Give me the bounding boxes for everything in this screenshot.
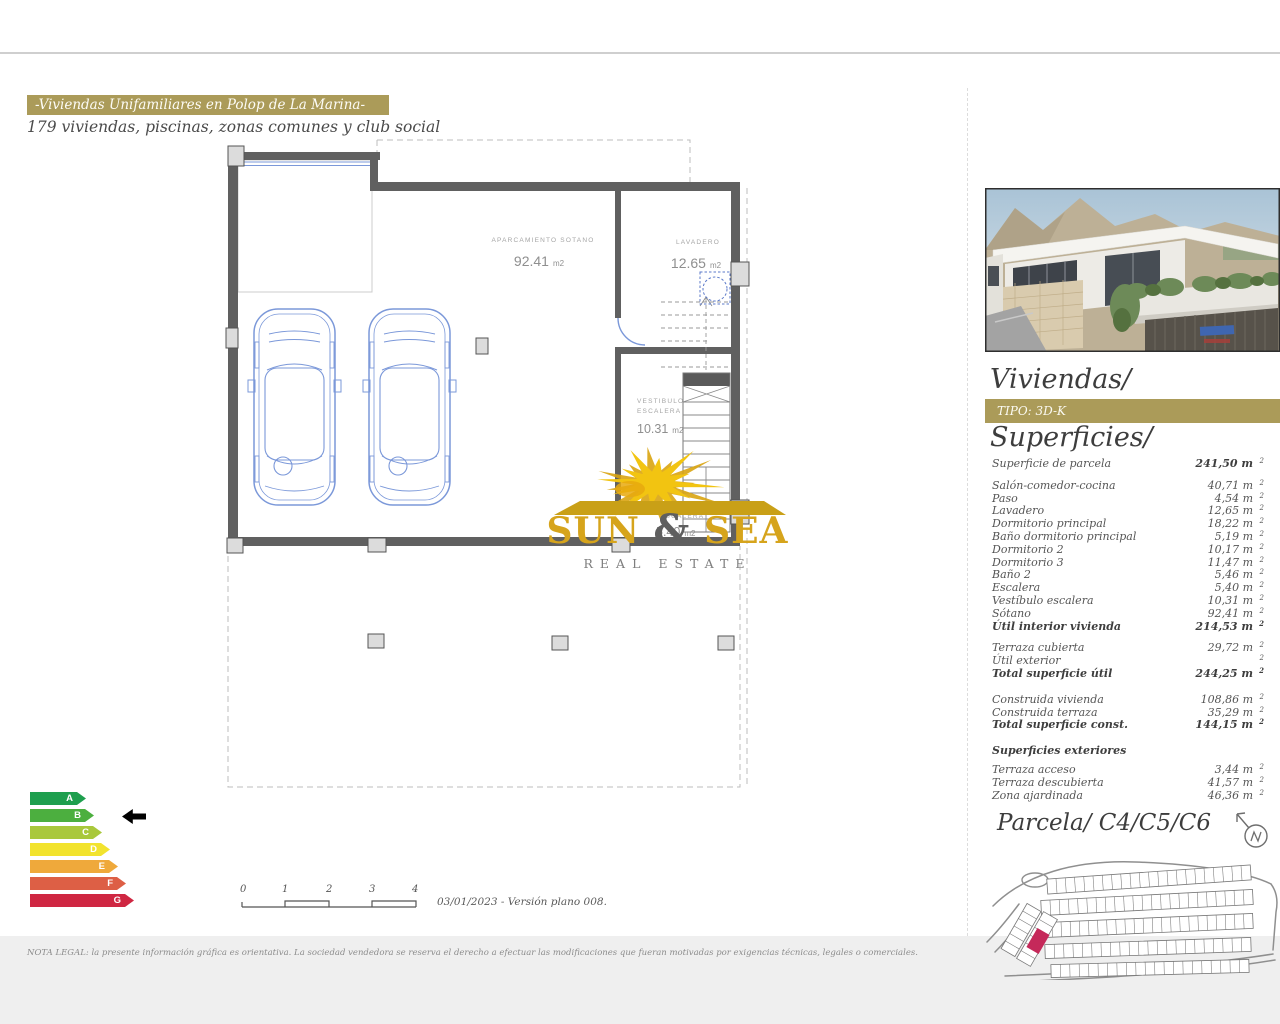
logo-ampersand: & (653, 506, 690, 553)
viviendas-title: Viviendas/ (990, 364, 1131, 395)
logo-word-sun: SUN (547, 510, 640, 552)
panel-divider (967, 88, 968, 936)
superficie-row: Útil interior vivienda214,53 m2 (992, 621, 1264, 634)
ground-floor-dashed-outline (377, 140, 690, 182)
energy-rating-chart: ABCDEFG (30, 792, 180, 911)
superficie-row: Construida vivienda108,86 m2 (992, 694, 1264, 707)
parking-room-label: APARCAMIENTO SOTANO (492, 237, 595, 244)
superficie-row: Superficie de parcela241,50 m2 (992, 458, 1264, 471)
laundry-room-label: LAVADERO (676, 239, 720, 246)
scale-tick: 4 (412, 884, 418, 895)
garage-door-line (242, 162, 370, 166)
parcel-strip (1043, 913, 1253, 937)
legal-note: NOTA LEGAL: la presente información gráf… (27, 948, 918, 958)
superficie-row: Terraza acceso3,44 m2 (992, 764, 1264, 777)
scale-tick: 0 (240, 884, 246, 895)
logo-tagline: REAL ESTATE (545, 556, 790, 571)
energy-arrow: D (30, 843, 110, 856)
superficie-row: Baño dormitorio principal5,19 m2 (992, 531, 1264, 544)
site-parcels (1001, 865, 1253, 978)
energy-level-c: C (30, 826, 180, 839)
energy-level-a: A (30, 792, 180, 805)
car-2-icon (363, 309, 456, 505)
plan-sheet-page: -Viviendas Unifamiliares en Polop de La … (0, 0, 1280, 1024)
laundry-room-area: 12.65m2 (671, 255, 722, 271)
logo-wordmark: SUN & SEA (545, 506, 790, 553)
superficie-row: Sótano92,41 m2 (992, 608, 1264, 621)
scale-bar-graphic (240, 894, 422, 910)
header-banner: -Viviendas Unifamiliares en Polop de La … (27, 95, 389, 115)
energy-level-f: F (30, 877, 180, 890)
energy-level-b: B (30, 809, 180, 822)
energy-level-g: G (30, 894, 180, 907)
superficies-title: Superficies/ (990, 422, 1153, 453)
energy-arrow: C (30, 826, 102, 839)
energy-arrow: E (30, 860, 118, 873)
scale-tick: 3 (369, 884, 375, 895)
superficies-table: Superficie de parcela241,50 m2Salón-come… (992, 458, 1264, 802)
superficie-row: Zona ajardinada46,36 m2 (992, 790, 1264, 803)
energy-arrow: G (30, 894, 134, 907)
energy-level-e: E (30, 860, 180, 873)
energy-arrow: A (30, 792, 86, 805)
ramp-area-outline (238, 160, 372, 292)
vestibule-room-area: 10.31m2 (637, 422, 684, 436)
superficie-row: Salón-comedor-cocina40,71 m2 (992, 480, 1264, 493)
site-plan-map (985, 846, 1280, 980)
parcela-title: Parcela/ C4/C5/C6 (997, 810, 1211, 836)
superficie-row: Total superficie útil244,25 m2 (992, 668, 1264, 681)
parked-cars (248, 309, 456, 505)
vestibule-room-label-2: ESCALERA (637, 408, 681, 415)
superficie-row: Terraza descubierta41,57 m2 (992, 777, 1264, 790)
header-title: -Viviendas Unifamiliares en Polop de La … (35, 97, 365, 113)
blue-sign (1200, 325, 1234, 336)
door-arc (618, 318, 645, 345)
parcel-strip (1045, 937, 1251, 958)
scale-bar: 01234 (240, 884, 422, 910)
logo-word-sea: SEA (704, 510, 788, 552)
parcel-strip (1051, 959, 1249, 977)
villa-photo (985, 188, 1280, 352)
car-1-icon (248, 309, 341, 505)
superficies-subheading: Superficies exteriores (992, 745, 1264, 758)
top-divider-line (0, 52, 1280, 54)
vestibule-room-label-1: VESTIBULO (637, 398, 684, 405)
energy-arrow: B (30, 809, 94, 822)
parcel-strip (1047, 865, 1252, 894)
tipo-bar: TIPO: 3D-K (985, 399, 1280, 423)
parcel-strip (1041, 889, 1253, 915)
scale-tick: 1 (282, 884, 288, 895)
scale-tick: 2 (326, 884, 332, 895)
superficie-row: Total superficie const.144,15 m2 (992, 719, 1264, 732)
energy-level-d: D (30, 843, 180, 856)
superficie-row: Vestíbulo escalera10,31 m2 (992, 595, 1264, 608)
version-text: 03/01/2023 - Versión plano 008. (437, 896, 607, 908)
energy-arrow: F (30, 877, 126, 890)
parking-room-area: 92.41m2 (514, 253, 565, 269)
superficie-row: Dormitorio 210,17 m2 (992, 544, 1264, 557)
